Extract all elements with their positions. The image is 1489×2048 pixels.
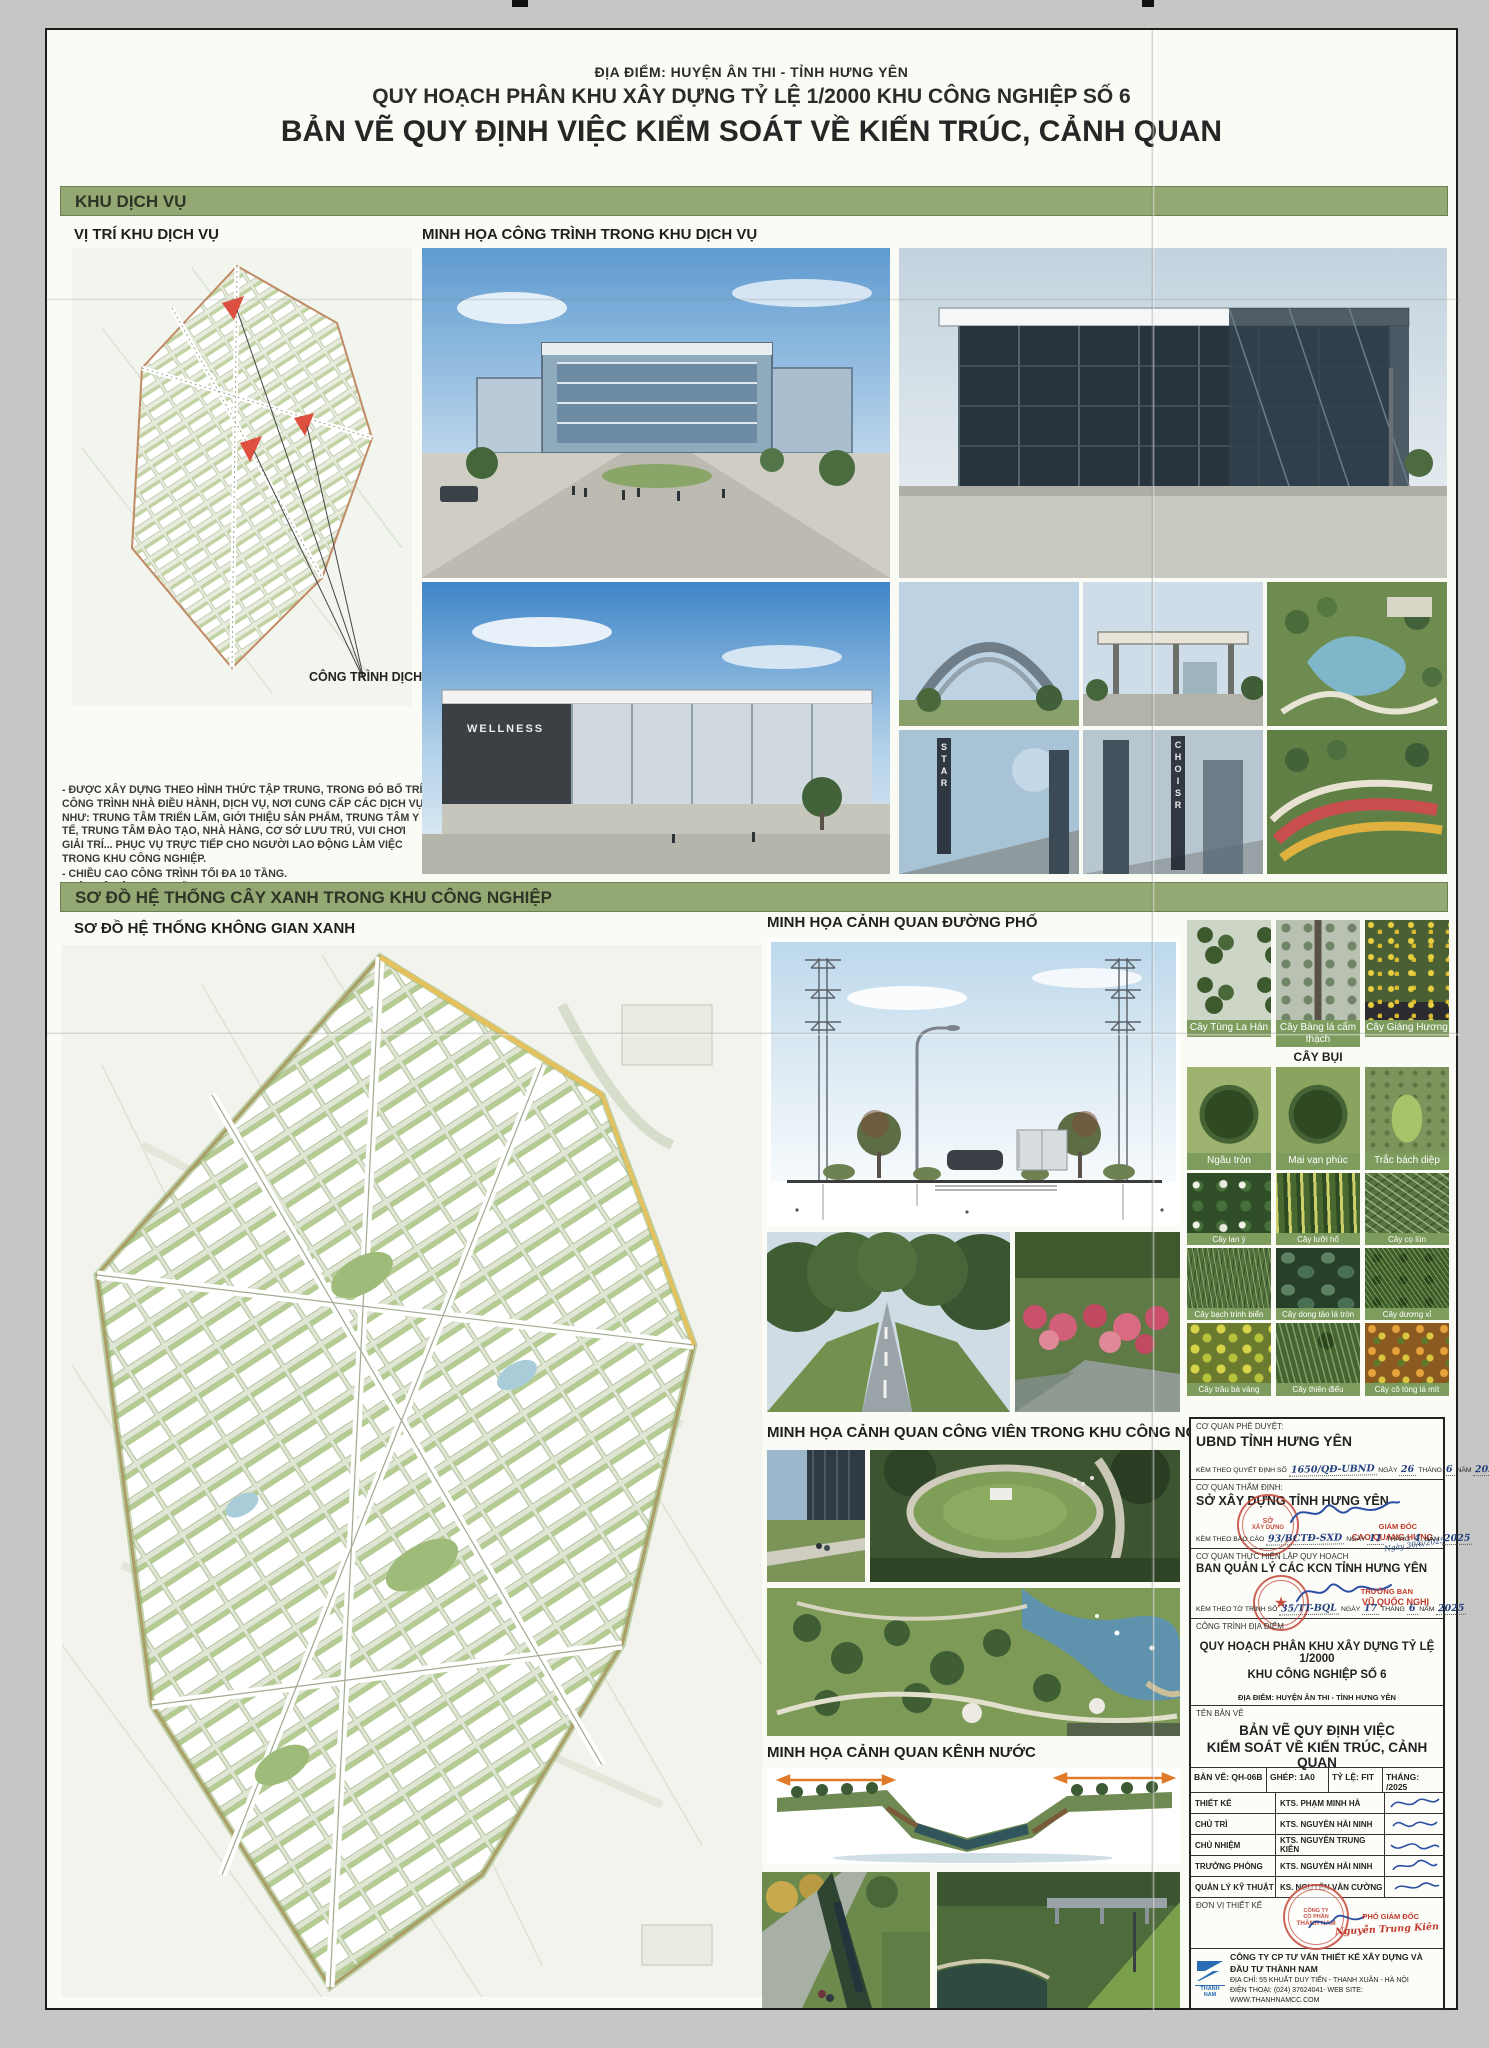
- decision-prefix: KÈM THEO QUYẾT ĐỊNH SỐ: [1196, 1467, 1287, 1474]
- word-day: NGÀY: [1378, 1467, 1397, 1474]
- decision-day-handwritten: 26: [1399, 1463, 1416, 1475]
- approval-authority-name: UBND TỈNH HƯNG YÊN: [1196, 1433, 1438, 1449]
- star-sign: STAR: [937, 738, 951, 854]
- staff-name: KTS. PHẠM MINH HÀ: [1276, 1793, 1385, 1813]
- photo-gate-canopy: [1083, 582, 1263, 726]
- drawing-name-line1: BẢN VẼ QUY ĐỊNH VIỆC: [1196, 1723, 1438, 1738]
- word-month: THÁNG: [1381, 1606, 1405, 1613]
- plant-photo: [1187, 1067, 1271, 1153]
- report-number-handwritten: 93/BCTĐ-SXD: [1266, 1532, 1344, 1545]
- label-green-space-plan: SƠ ĐỒ HỆ THỐNG KHÔNG GIAN XANH: [74, 920, 355, 937]
- plant-photo: [1187, 1173, 1271, 1233]
- fold-mark: [1142, 0, 1154, 7]
- plant-photo: [1276, 1173, 1360, 1233]
- note-line: - CHIỀU CAO CÔNG TRÌNH TỐI ĐA 10 TẦNG.: [62, 868, 424, 882]
- design-unit-box: ĐƠN VỊ THIẾT KẾ CÔNG TY CỔ PHẦN THÀNH NA…: [1191, 1898, 1443, 1948]
- master-plan-drawing: [62, 945, 762, 1997]
- staff-role: TRƯỞNG PHÒNG: [1191, 1856, 1276, 1876]
- service-photo-grid: STAR CHOISR: [899, 582, 1447, 874]
- rendering-service-office: [422, 248, 890, 578]
- decision-number-handwritten: 1650/QĐ-UBND: [1289, 1463, 1377, 1477]
- planning-agency-name: BAN QUẢN LÝ CÁC KCN TỈNH HƯNG YÊN: [1196, 1563, 1438, 1575]
- word-year: NĂM: [1456, 1467, 1471, 1474]
- plant-caption: Cây bạch trinh biển: [1187, 1308, 1271, 1320]
- park-photo-lake-aerial: [767, 1588, 1180, 1736]
- director-title: GIÁM ĐỐC: [1379, 1522, 1417, 1531]
- company-name: CÔNG TY CP TƯ VẤN THIẾT KẾ XÂY DỰNG VÀ Đ…: [1230, 1951, 1439, 1976]
- appraisal-authority-box: CƠ QUAN THẨM ĐỊNH: SỞ XÂY DỰNG TỈNH HƯNG…: [1191, 1480, 1443, 1549]
- project-location: ĐỊA ĐIỂM: HUYỆN ÂN THI - TỈNH HƯNG YÊN: [1196, 1693, 1438, 1702]
- street-photo-flowers: [1015, 1232, 1180, 1412]
- staff-row: TRƯỞNG PHÒNG KTS. NGUYỄN HẢI NINH: [1191, 1856, 1443, 1877]
- section-band-greenery: SƠ ĐỒ HỆ THỐNG CÂY XANH TRONG KHU CÔNG N…: [60, 882, 1448, 912]
- decision-reference-line: KÈM THEO QUYẾT ĐỊNH SỐ 1650/QĐ-UBND NGÀY…: [1196, 1464, 1439, 1476]
- drawing-sheet: ĐỊA ĐIỂM: HUYỆN ÂN THI - TỈNH HƯNG YÊN Q…: [45, 28, 1458, 2010]
- head-title: TRƯỞNG BAN: [1361, 1587, 1413, 1596]
- word-year: NĂM: [1425, 1536, 1440, 1543]
- staff-name: KTS. NGUYỄN HẢI NINH: [1276, 1814, 1385, 1834]
- photo-aerial-pond-garden: [1267, 582, 1447, 726]
- street-cross-section: [767, 938, 1180, 1226]
- word-day: NGÀY: [1346, 1536, 1365, 1543]
- report-prefix: KÈM THEO BÁO CÁO: [1196, 1536, 1264, 1543]
- staff-signature: [1385, 1814, 1443, 1834]
- plant-photo: [1365, 1067, 1449, 1153]
- plant-photo: [1276, 1067, 1360, 1153]
- staff-role: CHỦ NHIỆM: [1191, 1835, 1276, 1855]
- label-street-landscape: MINH HỌA CẢNH QUAN ĐƯỜNG PHỐ: [767, 914, 1038, 931]
- photo-gate-arch: [899, 582, 1079, 726]
- plant-photo: [1187, 1248, 1271, 1308]
- drawing-name-line2: KIỂM SOÁT VỀ KIẾN TRÚC, CẢNH QUAN: [1196, 1740, 1438, 1770]
- submission-day-handwritten: 17: [1362, 1603, 1379, 1615]
- planning-agency-box: CƠ QUAN THỰC HIỆN LẬP QUY HOẠCH BAN QUẢN…: [1191, 1549, 1443, 1620]
- rendering-service-pavilion: [899, 248, 1447, 578]
- plant-photo: [1365, 920, 1449, 1020]
- photo-flower-garden-aerial: [1267, 730, 1447, 874]
- plant-caption: Cây lưỡi hổ: [1276, 1233, 1360, 1245]
- staff-name: KTS. NGUYỄN TRUNG KIÊN: [1276, 1835, 1385, 1855]
- staff-table: THIẾT KẾ KTS. PHẠM MINH HÀ CHỦ TRÌ KTS. …: [1191, 1793, 1443, 1898]
- word-year: NĂM: [1419, 1606, 1434, 1613]
- staff-row: THIẾT KẾ KTS. PHẠM MINH HÀ: [1191, 1793, 1443, 1814]
- approval-authority-box: CƠ QUAN PHÊ DUYỆT: UBND TỈNH HƯNG YÊN KÈ…: [1191, 1419, 1443, 1480]
- canal-photo-linear-park: [762, 1872, 930, 2008]
- plant-photo: [1276, 1248, 1360, 1308]
- report-year-handwritten: 2025: [1441, 1532, 1472, 1545]
- decision-year-handwritten: 2025: [1473, 1463, 1489, 1476]
- plant-caption: Trắc bách diệp: [1365, 1153, 1449, 1170]
- plant-caption: Cây cô tòng lá mít: [1365, 1383, 1449, 1395]
- planning-agency-label: CƠ QUAN THỰC HIỆN LẬP QUY HOẠCH: [1196, 1552, 1438, 1561]
- plant-caption: Cây dương xỉ: [1365, 1308, 1449, 1320]
- sheet-title: BẢN VẼ QUY ĐỊNH VIỆC KIỂM SOÁT VỀ KIẾN T…: [47, 115, 1456, 149]
- fold-mark: [512, 0, 528, 7]
- plant-caption: Ngâu tròn: [1187, 1153, 1271, 1170]
- rendering-service-wellness: WELLNESS: [422, 582, 890, 874]
- thanh-nam-logo-icon: [1195, 1959, 1225, 1983]
- staff-role: THIẾT KẾ: [1191, 1793, 1276, 1813]
- plant-photo: [1365, 1173, 1449, 1233]
- submission-reference-line: KÈM THEO TỜ TRÌNH SỐ 35/TT-BQL NGÀY 17 T…: [1196, 1603, 1439, 1615]
- plant-caption: Cây dong tào lá tròn: [1276, 1308, 1360, 1320]
- project-box: CÔNG TRÌNH ĐỊA ĐIỂM QUY HOẠCH PHÂN KHU X…: [1191, 1619, 1443, 1706]
- project-label: CÔNG TRÌNH ĐỊA ĐIỂM: [1196, 1622, 1438, 1631]
- plant-reference-grid: Cây Tùng La Hán Cây Bàng lá cẩm thạch Câ…: [1187, 920, 1449, 1399]
- plant-caption: Cây Bàng lá cẩm thạch: [1276, 1020, 1360, 1047]
- section-band-service: KHU DỊCH VỤ: [60, 186, 1448, 216]
- car-silhouette: [947, 1150, 1003, 1170]
- staff-signature: [1385, 1856, 1443, 1876]
- choisr-sign: CHOISR: [1171, 736, 1185, 870]
- plant-caption: Cây lan ý: [1187, 1233, 1271, 1245]
- company-logo: THANH NAM: [1195, 1959, 1225, 1998]
- note-line: - ĐƯỢC XÂY DỰNG THEO HÌNH THỨC TẬP TRUNG…: [62, 784, 424, 867]
- submission-year-handwritten: 2025: [1436, 1603, 1467, 1616]
- street-photo-avenue: [767, 1232, 1010, 1412]
- company-phone: ĐIỆN THOẠI: (024) 37624041- WEB SITE: WW…: [1230, 1986, 1439, 2006]
- meta-scale: TỶ LỆ: FIT: [1329, 1768, 1383, 1792]
- label-canal-landscape: MINH HỌA CẢNH QUAN KÊNH NƯỚC: [767, 1744, 1036, 1761]
- plant-photo: [1365, 1248, 1449, 1308]
- staff-role: QUẢN LÝ KỸ THUẬT: [1191, 1877, 1276, 1897]
- meta-sheet: GHÉP: 1A0: [1267, 1768, 1329, 1792]
- submission-month-handwritten: 6: [1407, 1603, 1418, 1615]
- submission-number-handwritten: 35/TT-BQL: [1279, 1603, 1339, 1616]
- label-park-landscape: MINH HỌA CẢNH QUAN CÔNG VIÊN TRONG KHU C…: [767, 1424, 1232, 1441]
- staff-signature: [1385, 1835, 1443, 1855]
- approval-label: CƠ QUAN PHÊ DUYỆT:: [1196, 1422, 1438, 1431]
- canal-photo-green-bank: [937, 1872, 1180, 2008]
- plant-photo: [1187, 920, 1271, 1020]
- label-service-location: VỊ TRÍ KHU DỊCH VỤ: [74, 226, 219, 243]
- canal-cross-section: [767, 1768, 1180, 1864]
- project-name-line1: QUY HOẠCH PHÂN KHU XÂY DỰNG TỶ LỆ 1/2000: [1196, 1641, 1438, 1665]
- plant-photo: [1187, 1323, 1271, 1383]
- meta-drawing-no: BẢN VẼ: QH-06B: [1191, 1768, 1267, 1792]
- scanned-drawing-page: ĐỊA ĐIỂM: HUYỆN ÂN THI - TỈNH HƯNG YÊN Q…: [0, 0, 1489, 2048]
- label-service-illustrations: MINH HỌA CÔNG TRÌNH TRONG KHU DỊCH VỤ: [422, 226, 757, 243]
- staff-signature: [1385, 1793, 1443, 1813]
- project-name-line2: KHU CÔNG NGHIỆP SỐ 6: [1196, 1669, 1438, 1681]
- appraisal-label: CƠ QUAN THẨM ĐỊNH:: [1196, 1483, 1438, 1492]
- drawing-name-box: TÊN BẢN VẼ BẢN VẼ QUY ĐỊNH VIỆC KIỂM SOÁ…: [1191, 1706, 1443, 1768]
- meta-month: THÁNG: /2025: [1383, 1768, 1443, 1792]
- sheet-location-line: ĐỊA ĐIỂM: HUYỆN ÂN THI - TỈNH HƯNG YÊN: [47, 64, 1456, 80]
- company-footer: THANH NAM CÔNG TY CP TƯ VẤN THIẾT KẾ XÂY…: [1191, 1949, 1443, 2008]
- staff-signature: [1385, 1877, 1443, 1897]
- company-address: ĐỊA CHỈ: 55 KHUẤT DUY TIẾN - THANH XUÂN …: [1230, 1976, 1439, 1986]
- drawing-name-label: TÊN BẢN VẼ: [1196, 1709, 1438, 1718]
- staff-row: CHỦ NHIỆM KTS. NGUYỄN TRUNG KIÊN: [1191, 1835, 1443, 1856]
- service-notes: - ĐƯỢC XÂY DỰNG THEO HÌNH THỨC TẬP TRUNG…: [62, 784, 424, 897]
- plant-photo: [1276, 1323, 1360, 1383]
- word-day: NGÀY: [1341, 1606, 1360, 1613]
- logo-text: THANH NAM: [1195, 1985, 1225, 1998]
- submission-prefix: KÈM THEO TỜ TRÌNH SỐ: [1196, 1606, 1277, 1613]
- plant-caption: Cây Tùng La Hán: [1187, 1020, 1271, 1037]
- plant-caption: Cây cọ lùn: [1365, 1233, 1449, 1245]
- report-month-handwritten: 4: [1412, 1533, 1423, 1545]
- decision-month-handwritten: 6: [1444, 1463, 1455, 1475]
- park-photo-circular-lawn: [870, 1450, 1180, 1582]
- drawing-meta-row: BẢN VẼ: QH-06B GHÉP: 1A0 TỶ LỆ: FIT THÁN…: [1191, 1768, 1443, 1793]
- word-month: THÁNG: [1418, 1467, 1442, 1474]
- deputy-title: PHÓ GIÁM ĐỐC: [1362, 1912, 1419, 1921]
- plant-caption: Cây Giáng Hương: [1365, 1020, 1449, 1037]
- plant-caption: Cây thiên điểu: [1276, 1383, 1360, 1395]
- photo-choisr-sign-tower: CHOISR: [1083, 730, 1263, 874]
- title-block: CƠ QUAN PHÊ DUYỆT: UBND TỈNH HƯNG YÊN KÈ…: [1189, 1417, 1445, 2010]
- park-photo-campus: [767, 1450, 865, 1582]
- plant-caption: Mai vạn phúc: [1276, 1153, 1360, 1170]
- shrub-group-header: CÂY BỤI: [1187, 1050, 1449, 1064]
- staff-row: CHỦ TRÌ KTS. NGUYỄN HẢI NINH: [1191, 1814, 1443, 1835]
- photo-star-sign-tower: STAR: [899, 730, 1079, 874]
- sheet-plan-line: QUY HOẠCH PHÂN KHU XÂY DỰNG TỶ LỆ 1/2000…: [47, 85, 1456, 109]
- word-month: THÁNG: [1386, 1536, 1410, 1543]
- service-location-plan: [72, 248, 412, 706]
- report-day-handwritten: 11: [1367, 1532, 1384, 1544]
- plant-caption: Cây trầu bà vàng: [1187, 1383, 1271, 1395]
- service-plan-drawing: [72, 248, 412, 706]
- report-reference-line: KÈM THEO BÁO CÁO 93/BCTĐ-SXD NGÀY 11 THÁ…: [1196, 1533, 1439, 1545]
- plant-photo: [1276, 920, 1360, 1020]
- staff-role: CHỦ TRÌ: [1191, 1814, 1276, 1834]
- wellness-sign-text: WELLNESS: [467, 723, 544, 735]
- plant-photo: [1365, 1323, 1449, 1383]
- staff-name: KTS. NGUYỄN HẢI NINH: [1276, 1856, 1385, 1876]
